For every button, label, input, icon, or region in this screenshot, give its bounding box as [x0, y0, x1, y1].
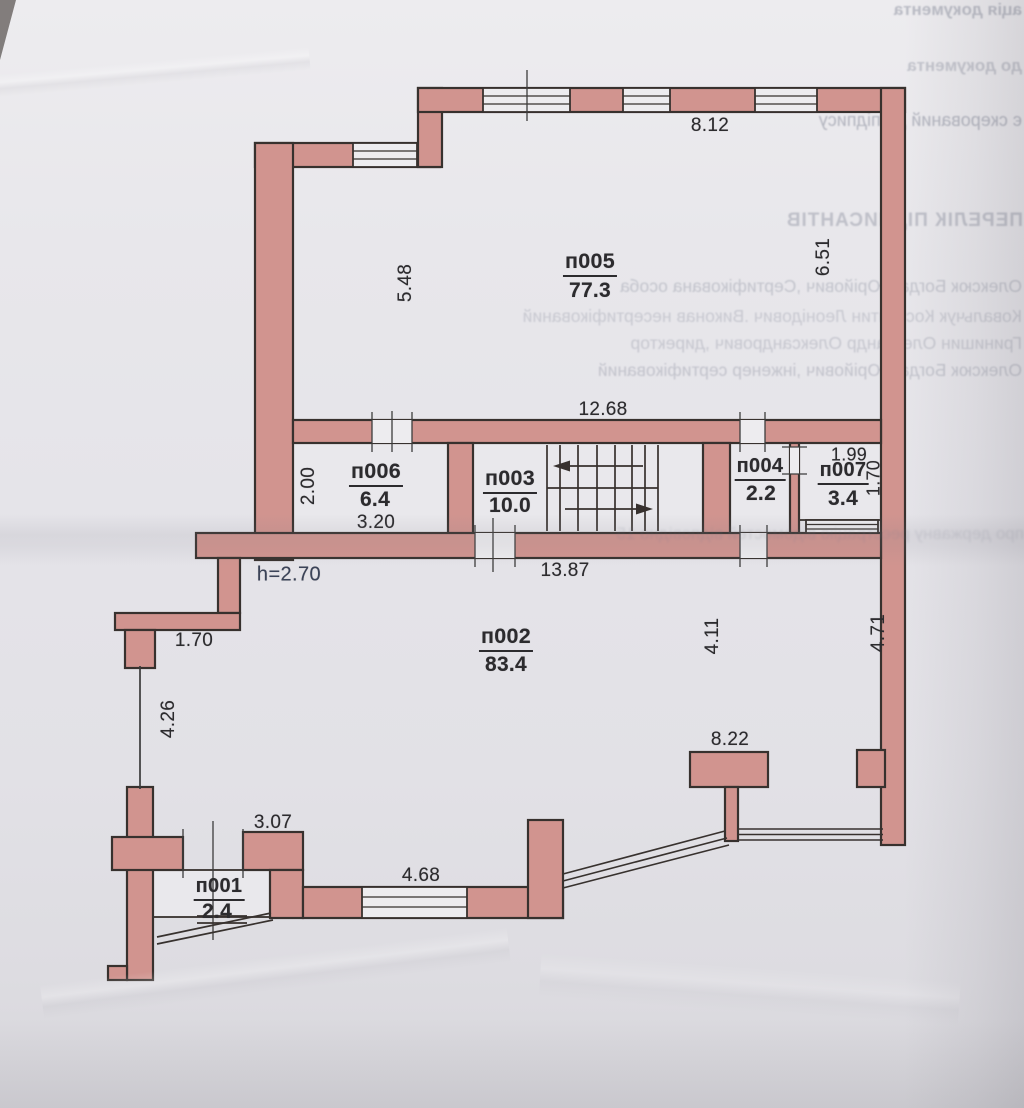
dim-8-22: 8.22 — [711, 729, 749, 751]
dim-1-70-right: 1.70 — [864, 460, 885, 496]
room-area-p002: 83.4 — [485, 653, 527, 677]
labels-layer: п005 77.3 п006 6.4 п003 10.0 п004 2.2 п0… — [0, 0, 1024, 1108]
room-label-p004: п004 — [735, 455, 786, 481]
dim-13-87: 13.87 — [540, 560, 589, 582]
dim-3-07: 3.07 — [254, 812, 292, 834]
dim-4-71: 4.71 — [868, 614, 890, 652]
room-label-p003: п003 — [483, 466, 537, 494]
room-area-p003: 10.0 — [489, 494, 531, 518]
dim-6-51: 6.51 — [813, 238, 835, 276]
room-area-p004: 2.2 — [746, 482, 776, 506]
dim-12-68: 12.68 — [578, 399, 627, 421]
dim-4-68: 4.68 — [402, 865, 440, 887]
room-label-p002: п002 — [479, 624, 533, 652]
dim-4-11: 4.11 — [702, 618, 724, 655]
dim-1-99: 1.99 — [831, 445, 867, 466]
dim-8-12: 8.12 — [691, 115, 729, 137]
dim-4-26: 4.26 — [158, 700, 180, 738]
room-area-p001: 2.4 — [202, 900, 232, 924]
dim-2-00: 2.00 — [298, 467, 320, 505]
dim-1-70-left: 1.70 — [175, 630, 213, 652]
room-area-p005: 77.3 — [569, 279, 611, 303]
height-note: h=2.70 — [257, 564, 321, 587]
room-label-p006: п006 — [349, 459, 403, 487]
room-area-p007: 3.4 — [828, 487, 858, 511]
room-label-p005: п005 — [563, 249, 617, 277]
dim-3-20: 3.20 — [357, 512, 395, 534]
room-label-p001: п001 — [194, 875, 245, 901]
scanned-floor-plan-photo: ація документа до документа є скерований… — [0, 0, 1024, 1108]
dim-5-48: 5.48 — [395, 264, 417, 302]
room-area-p006: 6.4 — [360, 488, 390, 512]
